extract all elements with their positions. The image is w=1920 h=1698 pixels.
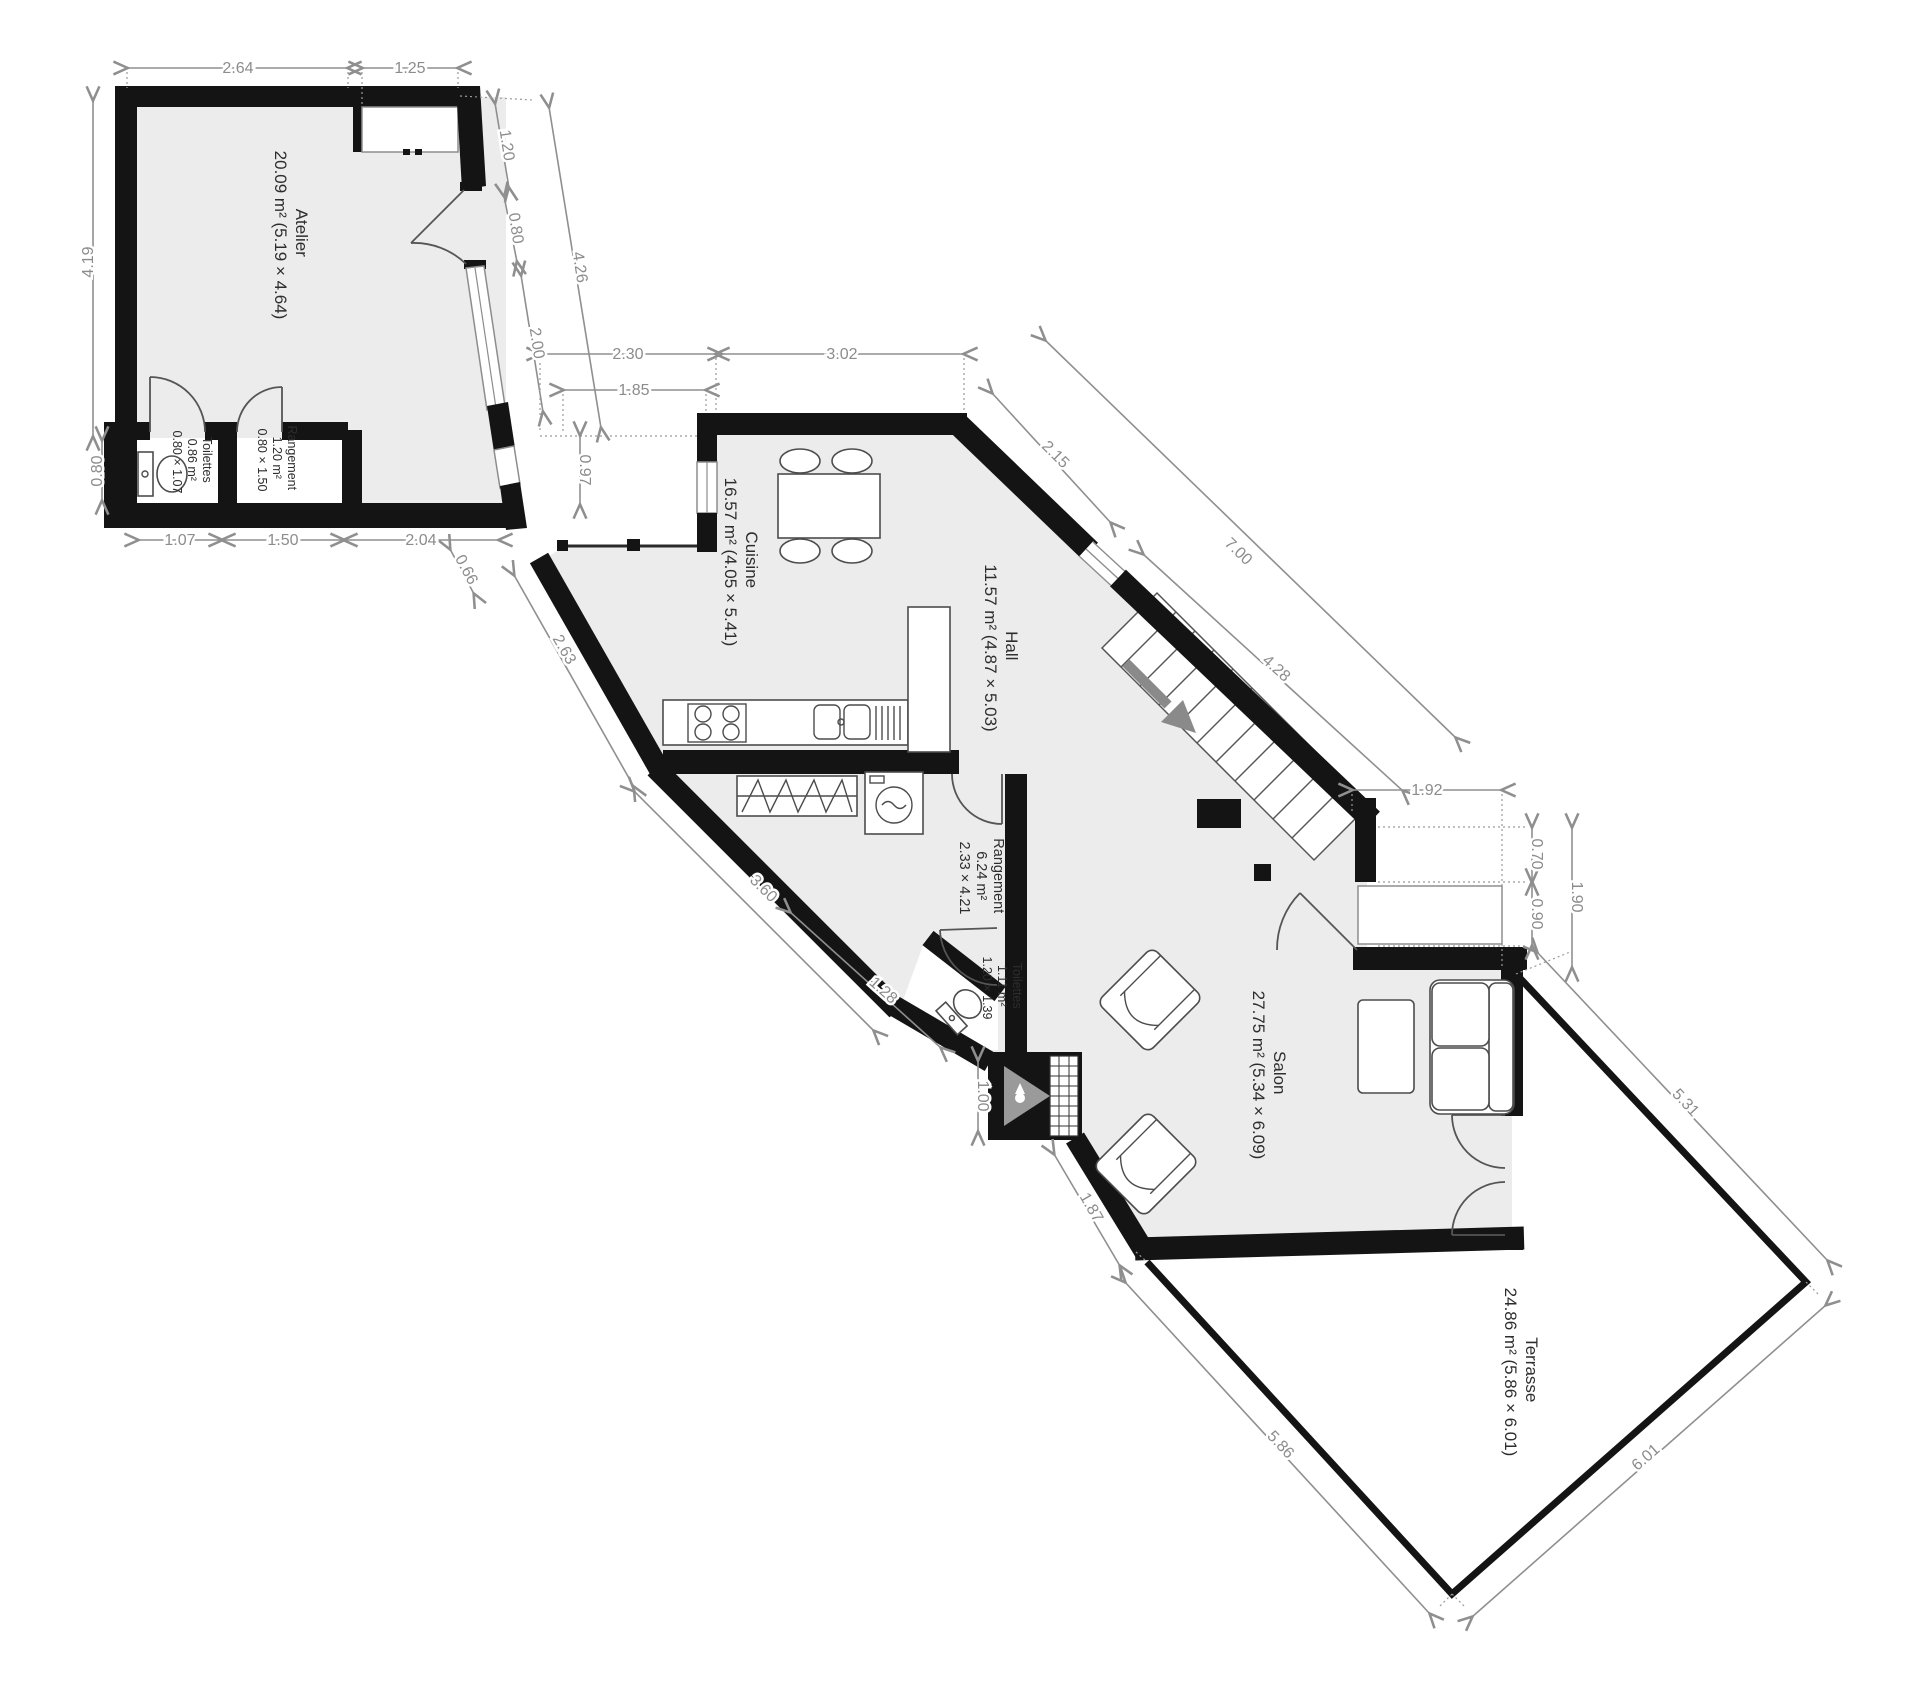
dim-terrasse-3: 6.01 bbox=[1629, 1441, 1664, 1474]
dim-top-2: 1.25 bbox=[394, 60, 425, 77]
dim-nook-2: 0.70 bbox=[1528, 838, 1545, 869]
dim-passage-2: 1.85 bbox=[618, 382, 649, 399]
dim-nook-3: 0.90 bbox=[1528, 898, 1545, 929]
dim-fireplace: 1.00 bbox=[974, 1080, 991, 1111]
washing-machine-icon bbox=[865, 772, 923, 834]
floor-plan-svg: 2.64 1.25 4.19 0.80 1.20 0.80 4.26 2.00 … bbox=[0, 0, 1920, 1698]
dim-ne-3: 4.28 bbox=[1259, 652, 1294, 686]
dim-top-1: 2.64 bbox=[222, 60, 253, 77]
dim-bottom-3: 2.04 bbox=[405, 532, 436, 549]
column-post bbox=[1254, 864, 1271, 881]
dim-cuisine-top: 3.02 bbox=[826, 346, 857, 363]
dim-right-3: 4.26 bbox=[569, 251, 591, 285]
dim-right-2: 0.80 bbox=[505, 212, 527, 246]
dim-bottom-1: 1.07 bbox=[164, 532, 195, 549]
coffee-table-icon bbox=[1358, 1000, 1414, 1093]
dim-left-2: 0.80 bbox=[89, 455, 106, 486]
column-pier bbox=[1197, 799, 1241, 828]
toilettes-label: Toilettes 1.11 m² 1.20 × 1.39 bbox=[980, 957, 1026, 1020]
dim-sw-0: 0.66 bbox=[451, 552, 481, 588]
wardrobe-icon bbox=[737, 776, 857, 816]
atelier-niche bbox=[362, 107, 458, 152]
dim-nook-4: 1.90 bbox=[1568, 881, 1585, 912]
dim-passage-3: 0.97 bbox=[576, 454, 593, 485]
floor-plan-page: 2.64 1.25 4.19 0.80 1.20 0.80 4.26 2.00 … bbox=[0, 0, 1920, 1698]
dim-bottom-2: 1.50 bbox=[267, 532, 298, 549]
dim-ne-2: 7.00 bbox=[1221, 535, 1255, 569]
dim-terrasse-1: 5.31 bbox=[1668, 1086, 1702, 1120]
dim-ne-1: 2.15 bbox=[1038, 438, 1072, 472]
toilettes-a-label: Toilettes 0.86 m² 0.80 × 1.07 bbox=[170, 431, 216, 494]
terrasse-label: Terrasse 24.86 m² (5.86 × 6.01) bbox=[1501, 1288, 1541, 1457]
fireplace-icon bbox=[988, 1052, 1082, 1140]
floor-areas bbox=[126, 97, 1512, 1252]
dim-left-1: 4.19 bbox=[80, 246, 97, 277]
salon-window-bay bbox=[1358, 886, 1502, 944]
sofa-icon bbox=[1430, 980, 1514, 1114]
dim-passage-1: 2.30 bbox=[612, 346, 643, 363]
dim-terrasse-2: 5.86 bbox=[1263, 1428, 1297, 1462]
dim-right-4: 2.00 bbox=[526, 327, 548, 361]
dim-nook-1: 1.92 bbox=[1411, 782, 1442, 799]
